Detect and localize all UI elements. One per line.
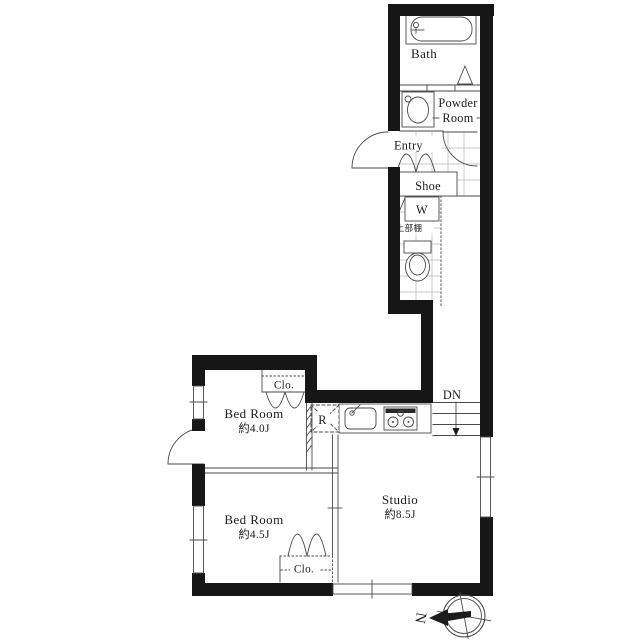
compass-north-label: N — [411, 611, 429, 625]
bedroom-b-label: Bed Room — [224, 512, 283, 527]
bath-label: Bath — [411, 46, 437, 61]
window-bedroom-b — [190, 506, 207, 573]
kitchen: R — [311, 404, 431, 433]
bedroom-a-label: Bed Room — [224, 406, 283, 421]
powder-room-label-1: Powder — [438, 96, 477, 110]
bedroom-b-area: 約4.5J — [238, 527, 270, 541]
toilet-icon — [404, 241, 431, 281]
studio-label: Studio — [382, 492, 418, 507]
washer-toilet-area: W 上部棚 — [394, 196, 441, 307]
floor-plan-drawing: Bath Powder Room Entry Shoe — [0, 0, 640, 640]
powder-room-label-2: Room — [442, 111, 473, 125]
bedroom-a-area: 約4.0J — [238, 421, 270, 435]
walls — [192, 4, 494, 596]
window-bedroom-a — [190, 386, 207, 419]
window-studio-south — [333, 580, 412, 598]
bath-folding-door-icon — [458, 66, 473, 84]
stairs-label: DN — [443, 388, 461, 402]
bath-room: Bath — [400, 14, 480, 91]
partition-bedroomB-studio — [328, 435, 342, 582]
stairs-down: DN — [433, 388, 480, 436]
compass: N — [411, 592, 490, 638]
entry-label: Entry — [394, 139, 423, 153]
washer-label: W — [416, 203, 428, 217]
bath-faucet-icon — [411, 22, 424, 33]
stairs-direction-arrow — [453, 428, 460, 436]
refrigerator-label: R — [318, 413, 327, 427]
powder-room: Powder Room — [400, 92, 482, 166]
front-door — [352, 132, 388, 168]
studio-area: 約8.5J — [384, 507, 416, 521]
bathtub — [411, 17, 472, 41]
closet-b-bifold-door-icon — [288, 534, 326, 556]
bath-threshold — [400, 85, 480, 91]
compass-needle — [445, 611, 471, 622]
window-studio-east — [477, 437, 494, 517]
shoe-label: Shoe — [415, 179, 441, 193]
closet-b-label: Clo. — [294, 564, 314, 576]
floor-plan-page: Bath Powder Room Entry Shoe — [0, 0, 640, 640]
closet-b: Clo. — [280, 534, 332, 582]
partition-bedroomA-bedroomB — [199, 468, 338, 473]
closet-a-label: Clo. — [274, 380, 294, 392]
closet-a: Clo. — [262, 370, 306, 408]
refrigerator-space: R — [311, 405, 339, 432]
bedroom-a-door — [168, 428, 204, 464]
